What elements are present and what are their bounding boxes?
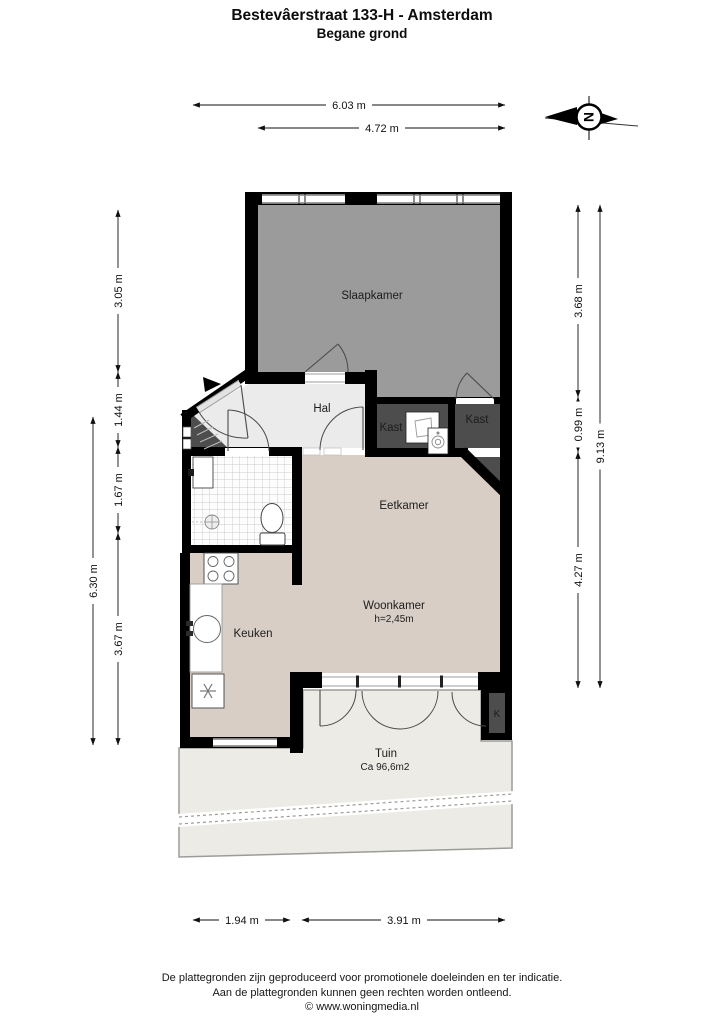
- footer-copyright: © www.woningmedia.nl: [0, 1000, 724, 1015]
- label-woonkamer-height: h=2,45m: [374, 614, 413, 625]
- stove-icon: [204, 553, 238, 584]
- kast-rechts-floor: [455, 404, 500, 448]
- dim-right-3: 4.27 m: [573, 553, 585, 587]
- label-tuin-area: Ca 96,6m2: [361, 762, 410, 773]
- dim-top-inner: 4.72 m: [365, 123, 399, 135]
- meter-box-icon: [183, 439, 191, 449]
- footer: De plattegronden zijn geproduceerd voor …: [0, 971, 724, 1015]
- label-eetkamer: Eetkamer: [379, 500, 428, 512]
- label-woonkamer: Woonkamer: [363, 600, 425, 612]
- kitchen-counter: [186, 584, 222, 672]
- label-kast-links: Kast: [379, 422, 403, 434]
- label-tuin: Tuin: [375, 748, 397, 760]
- floor-plan-drawing: Slaapkamer Hal Kast Kast Eetkamer Woonka…: [0, 0, 724, 1024]
- label-keuken: Keuken: [233, 628, 272, 640]
- freezer-icon: [192, 674, 224, 708]
- dim-left-1: 3.05 m: [113, 274, 125, 308]
- dim-right-1: 3.68 m: [573, 284, 585, 318]
- label-hal: Hal: [313, 403, 330, 415]
- label-slaapkamer: Slaapkamer: [341, 290, 403, 302]
- dim-top-total: 6.03 m: [332, 100, 366, 112]
- footer-line-1: De plattegronden zijn geproduceerd voor …: [0, 971, 724, 986]
- label-kast-k: K: [494, 709, 501, 720]
- tap-icon: [188, 469, 194, 476]
- shower-drain-icon: [205, 515, 219, 529]
- dim-left-outer: 6.30 m: [88, 564, 100, 598]
- dim-bottom-right: 3.91 m: [387, 915, 421, 927]
- compass-icon: N: [545, 96, 638, 140]
- toilet-icon: [260, 504, 285, 546]
- meter-box-icon: [183, 427, 191, 437]
- dim-right-outer: 9.13 m: [595, 430, 607, 464]
- footer-line-2: Aan de plattegronden kunnen geen rechten…: [0, 986, 724, 1001]
- dim-left-4: 3.67 m: [113, 622, 125, 656]
- floorplan-page: Bestevâerstraat 133-H - Amsterdam Begane…: [0, 0, 724, 1024]
- dim-bottom-left: 1.94 m: [225, 915, 259, 927]
- room-floors: [190, 205, 500, 737]
- label-kast-rechts: Kast: [465, 414, 489, 426]
- sink-icon: [194, 616, 221, 643]
- washbasin-icon: [193, 457, 213, 488]
- dim-left-2: 1.44 m: [113, 393, 125, 427]
- dim-left-3: 1.67 m: [113, 473, 125, 507]
- compass-north-letter: N: [581, 112, 597, 122]
- dim-right-2: 0.99 m: [573, 408, 585, 442]
